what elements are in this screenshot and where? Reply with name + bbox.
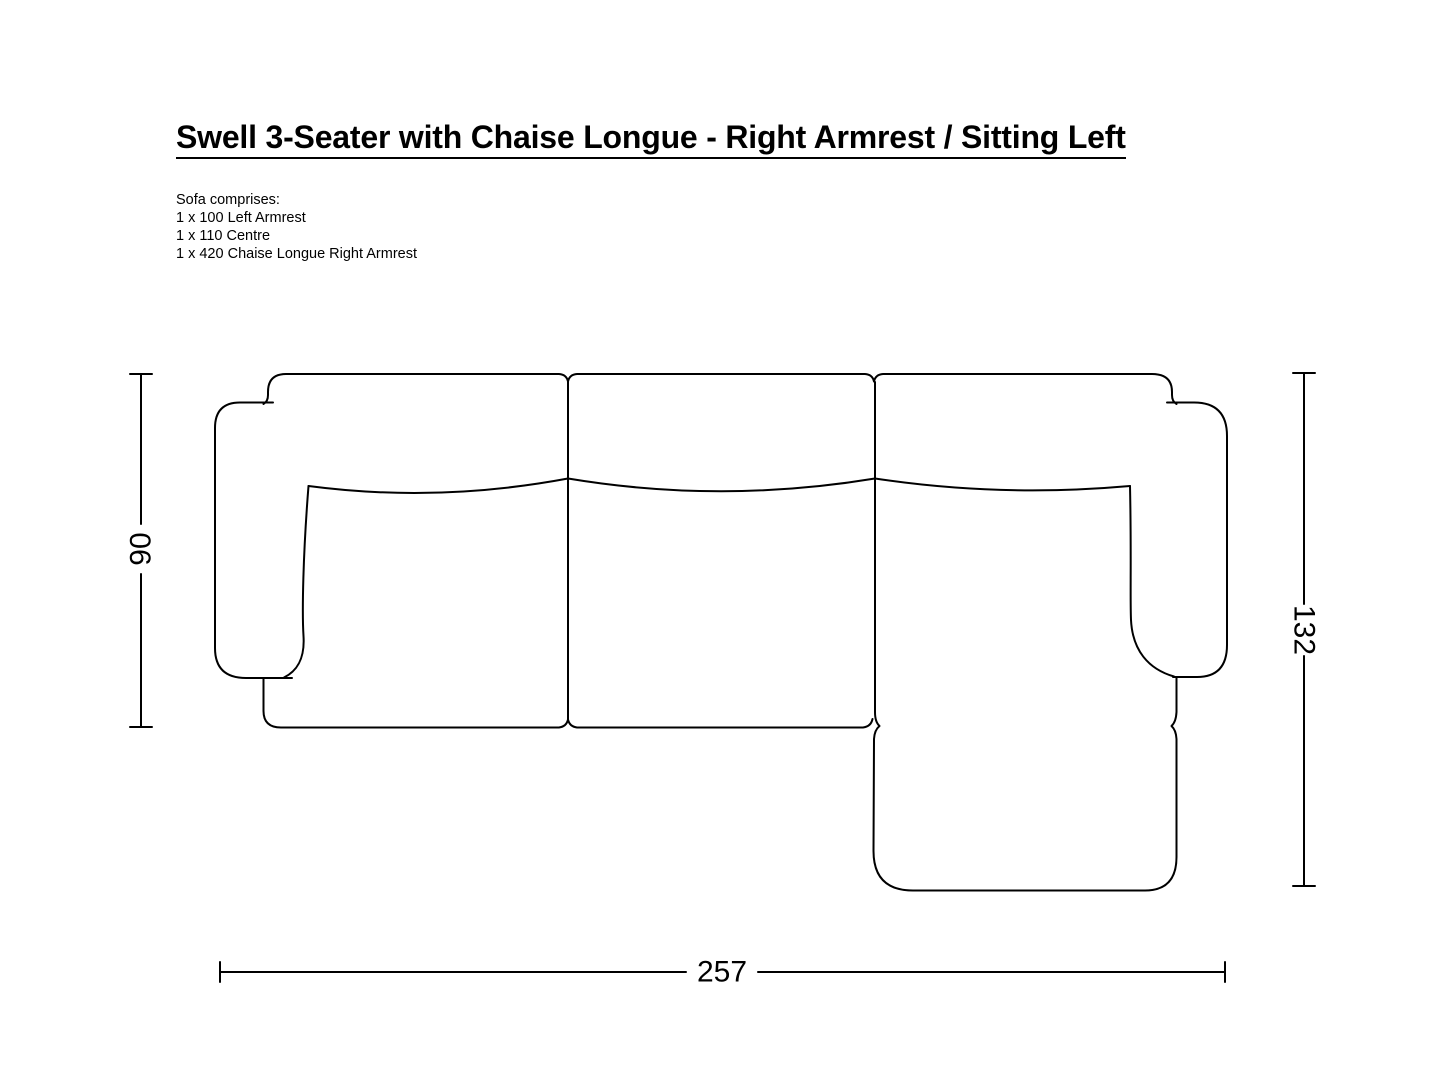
left-armrest-inner-edge xyxy=(284,486,309,678)
width-dimension-label: 257 xyxy=(697,956,747,989)
depth-dimension-label: 90 xyxy=(125,532,158,565)
cushion-seam-curve xyxy=(309,479,1131,493)
sofa-back-top-edge xyxy=(264,374,1177,404)
sofa-spec-page: Swell 3-Seater with Chaise Longue - Righ… xyxy=(0,0,1445,1087)
right-armrest-inner-edge xyxy=(1130,486,1174,677)
chaise-depth-dimension-label: 132 xyxy=(1288,605,1321,655)
left-armrest-outline xyxy=(215,403,292,679)
sofa-top-view-diagram: 90 132 257 xyxy=(0,0,1445,1087)
right-armrest-outline xyxy=(1167,403,1227,678)
chaise-outline xyxy=(874,382,1177,891)
